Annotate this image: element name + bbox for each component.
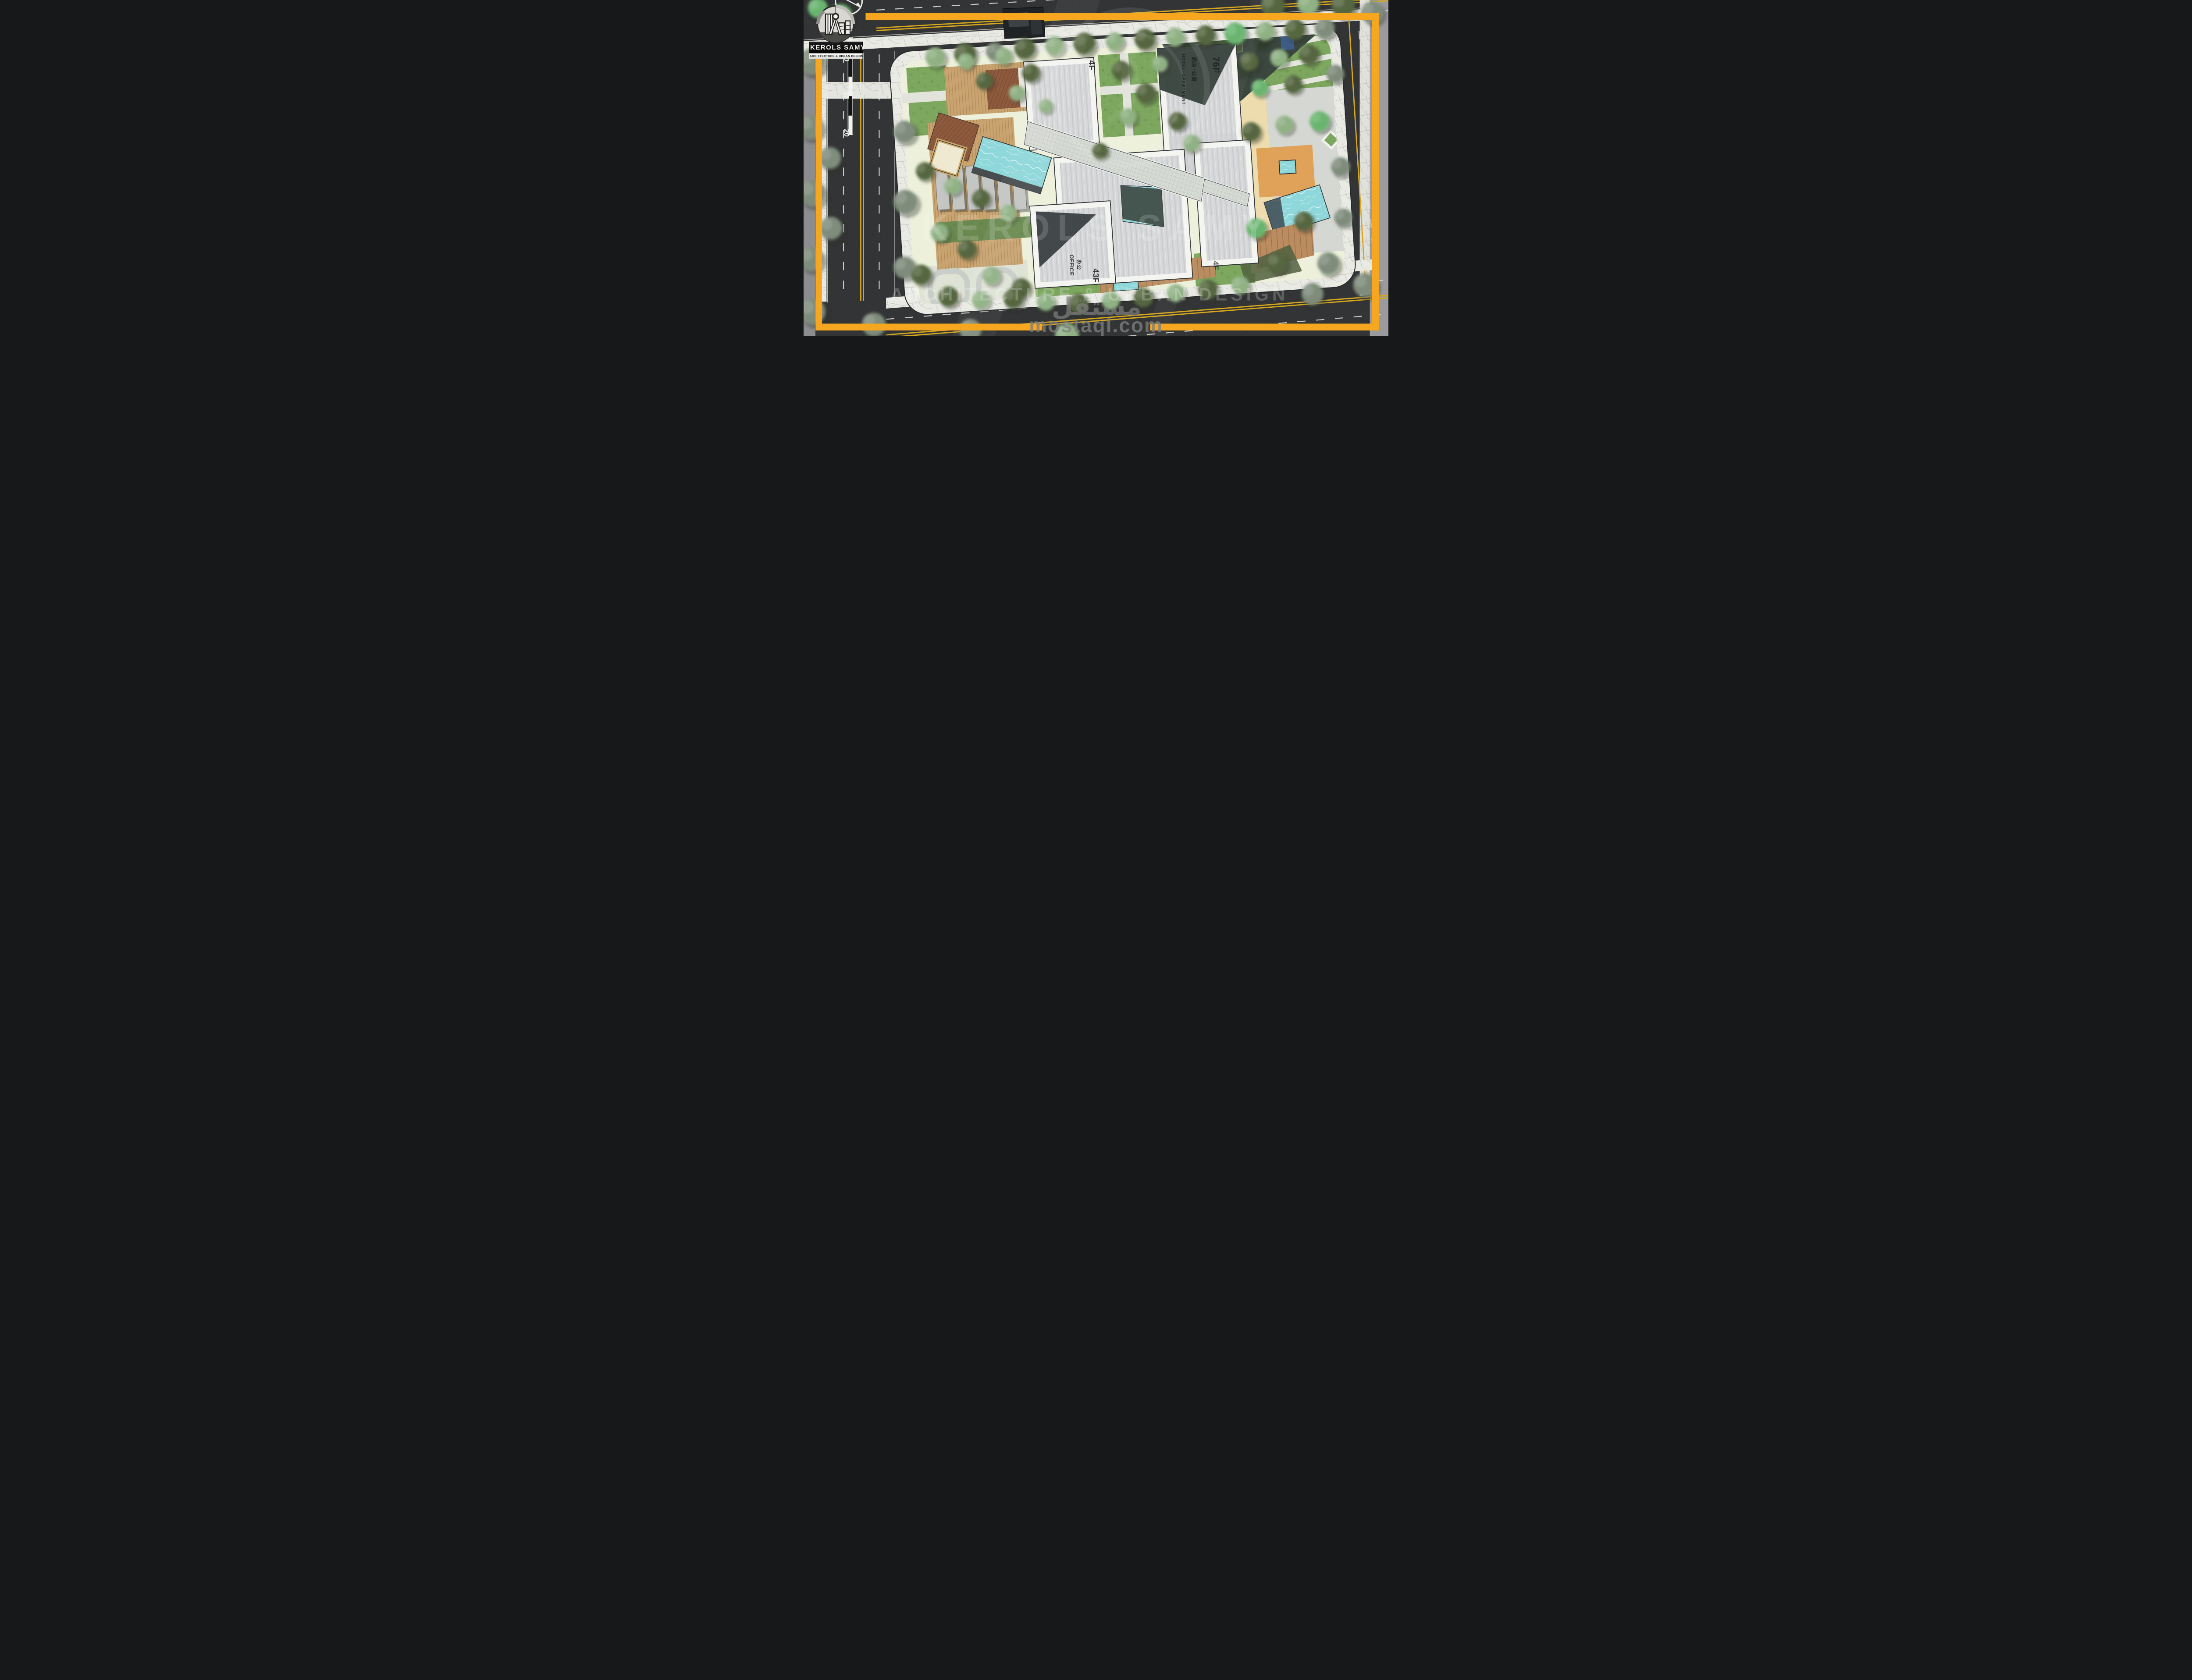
label-hotel-floors: 76F [1210, 57, 1221, 73]
label-hotel-use-zh: 酒店+公寓 [1191, 57, 1198, 82]
label-office-use-zh: 办公 [1075, 259, 1082, 270]
masterplan-poster: 10 15 20 [804, 0, 1388, 336]
pedestrian-crossing [826, 82, 895, 99]
scale-tick-15: 15 [843, 91, 850, 99]
frame-left-bar [815, 52, 822, 330]
scale-tick-20: 20 [843, 129, 850, 137]
frame-bottom-right-bar [1150, 323, 1379, 330]
frame-right-bar [1372, 13, 1379, 330]
frame-top-bar [865, 13, 1379, 20]
label-office-use-en: OFFICE [1068, 255, 1075, 276]
label-east-podium-floors: 4F [1211, 261, 1220, 270]
brand-logo: KEROLS SAMY ARCHITECTURE & URBAN DESIGN [809, 4, 863, 59]
frame-bottom-left-bar [815, 323, 1042, 330]
logo-tagline: ARCHITECTURE & URBAN DESIGN [809, 53, 863, 59]
label-office-floors: 43F [1091, 269, 1100, 283]
site-plan-drawing: 10 15 20 [804, 0, 1388, 336]
logo-name: KEROLS SAMY [809, 42, 863, 53]
logo-emblem-icon [815, 4, 856, 44]
label-retail-floors: 4F [1086, 60, 1096, 70]
roadside-kiosk [1003, 7, 1045, 39]
label-hotel-use-en: HOTEL+APARTMENT [1181, 54, 1185, 105]
